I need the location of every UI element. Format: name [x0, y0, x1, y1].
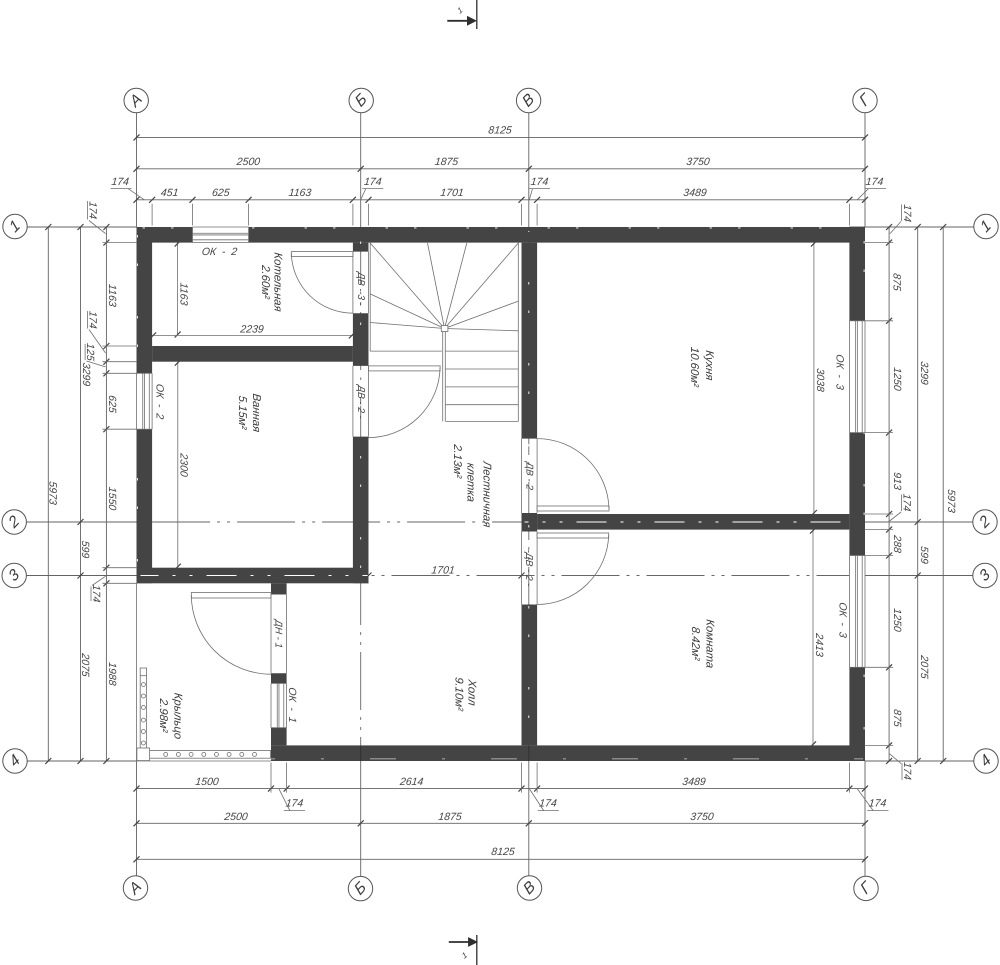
svg-text:2.60м²: 2.60м² [259, 264, 271, 301]
svg-text:10.60м²: 10.60м² [688, 346, 700, 388]
svg-text:288: 288 [891, 534, 903, 554]
svg-text:174: 174 [901, 762, 913, 781]
svg-text:174: 174 [87, 310, 99, 329]
svg-text:1250: 1250 [891, 367, 903, 392]
svg-text:174: 174 [868, 798, 887, 810]
svg-text:ДВ - 2 -: ДВ - 2 - [355, 384, 366, 420]
svg-text:3299: 3299 [918, 361, 930, 386]
svg-text:174: 174 [285, 798, 304, 810]
svg-text:Лестничная: Лестничная [480, 460, 492, 528]
svg-text:ДВ - 2: ДВ - 2 [524, 461, 535, 491]
svg-text:1701: 1701 [431, 564, 456, 576]
svg-text:ОК - 1: ОК - 1 [286, 687, 298, 724]
svg-text:1163: 1163 [288, 187, 312, 199]
svg-text:625: 625 [106, 395, 118, 414]
svg-text:1163: 1163 [106, 283, 118, 307]
svg-text:2075: 2075 [79, 652, 91, 678]
svg-text:3299: 3299 [80, 362, 92, 387]
svg-text:1550: 1550 [106, 486, 118, 511]
svg-text:ОК - 3: ОК - 3 [837, 602, 849, 639]
svg-text:451: 451 [160, 187, 179, 199]
svg-text:-ДВ - 2 -: -ДВ - 2 - [523, 549, 534, 588]
svg-text:1163: 1163 [177, 282, 189, 306]
svg-text:174: 174 [87, 201, 99, 220]
svg-text:Крыльцо: Крыльцо [172, 692, 184, 740]
svg-text:ОК - 2: ОК - 2 [201, 246, 238, 258]
svg-text:174: 174 [363, 176, 382, 188]
svg-text:1875: 1875 [438, 811, 463, 823]
svg-text:625: 625 [211, 187, 230, 199]
svg-text:3750: 3750 [690, 811, 715, 823]
svg-text:2239: 2239 [239, 323, 265, 335]
svg-text:174: 174 [111, 176, 130, 188]
svg-text:ОК - 2: ОК - 2 [153, 383, 165, 420]
svg-text:913: 913 [891, 472, 903, 491]
svg-text:клетка: клетка [464, 462, 476, 502]
svg-text:5973: 5973 [47, 481, 59, 506]
svg-text:1250: 1250 [891, 608, 903, 633]
svg-text:174: 174 [90, 584, 102, 603]
svg-text:8.42м²: 8.42м² [689, 626, 701, 662]
svg-text:125: 125 [84, 343, 96, 362]
svg-text:1875: 1875 [434, 156, 459, 168]
svg-text:2614: 2614 [398, 776, 424, 788]
svg-text:5973: 5973 [945, 489, 957, 514]
svg-text:174: 174 [900, 493, 912, 512]
svg-text:2500: 2500 [235, 156, 261, 168]
svg-text:1988: 1988 [106, 661, 118, 686]
svg-text:Кухня: Кухня [703, 350, 715, 381]
svg-text:3750: 3750 [686, 156, 711, 168]
svg-text:599: 599 [79, 540, 91, 559]
svg-text:875: 875 [891, 709, 903, 728]
svg-text:8125: 8125 [491, 846, 516, 858]
svg-text:2413: 2413 [813, 632, 825, 658]
svg-text:2300: 2300 [178, 452, 190, 478]
svg-text:ДВ - 3 -: ДВ - 3 - [355, 271, 366, 307]
svg-text:ДН - 1: ДН - 1 [272, 618, 283, 648]
svg-text:3489: 3489 [683, 187, 708, 199]
svg-text:8125: 8125 [488, 125, 513, 137]
svg-text:1500: 1500 [195, 776, 220, 788]
svg-text:174: 174 [901, 204, 913, 223]
svg-text:3489: 3489 [682, 776, 707, 788]
svg-text:599: 599 [918, 546, 930, 565]
svg-text:2.98м²: 2.98м² [157, 697, 169, 734]
svg-text:875: 875 [891, 273, 903, 292]
svg-text:Комната: Комната [703, 619, 715, 669]
svg-text:Ванная: Ванная [250, 393, 262, 433]
svg-text:5.15м²: 5.15м² [236, 395, 248, 431]
svg-text:3038: 3038 [814, 368, 826, 393]
svg-text:174: 174 [865, 176, 884, 188]
svg-text:2075: 2075 [918, 654, 930, 680]
svg-text:1701: 1701 [440, 187, 465, 199]
svg-text:Котельная: Котельная [272, 252, 284, 312]
svg-text:ОК - 3: ОК - 3 [834, 354, 846, 391]
svg-text:174: 174 [539, 798, 558, 810]
svg-text:174: 174 [530, 176, 549, 188]
svg-text:9.10м²: 9.10м² [453, 677, 465, 713]
svg-text:Холл: Холл [466, 678, 478, 707]
svg-text:2500: 2500 [223, 811, 249, 823]
svg-text:2.13м²: 2.13м² [451, 443, 463, 480]
